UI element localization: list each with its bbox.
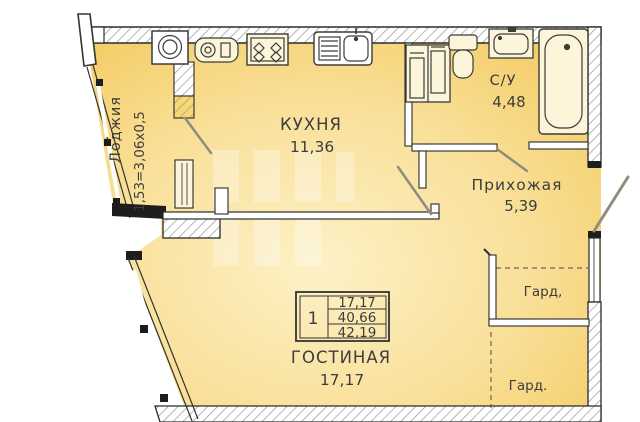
loggia-window-element	[175, 160, 193, 208]
hallway-label: Прихожая	[471, 176, 562, 194]
shaft-cabinet-icon	[406, 45, 450, 102]
sink-icon	[314, 28, 372, 65]
wall-kitchen-living-jamb	[431, 204, 439, 213]
bathroom-area: 4,48	[492, 93, 525, 111]
floor-plan-page: Лоджия 1,53=3,06х0,5 КУХНЯ 11,36 С/У 4,4…	[0, 0, 640, 422]
wall-right-frame	[589, 238, 600, 302]
loggia-partition-threshold	[174, 96, 194, 118]
wall-pier-hatched	[163, 218, 220, 238]
living-area: 17,17	[320, 371, 364, 389]
stamp-residential-area: 40,66	[338, 310, 377, 326]
wall-bottom	[155, 406, 601, 422]
living-label: ГОСТИНАЯ	[291, 348, 391, 367]
hallway-area: 5,39	[504, 197, 537, 215]
bathtub-icon	[539, 29, 588, 134]
wall-stub	[215, 188, 228, 214]
loggia-partition	[174, 62, 194, 96]
toilet-icon	[449, 35, 477, 78]
washbasin-icon	[489, 27, 533, 58]
kitchen-label: КУХНЯ	[280, 115, 342, 134]
wardrobe-top-label: Гард,	[524, 284, 563, 300]
wall-kitchen-hall	[419, 151, 426, 188]
loggia-dims: 1,53=3,06х0,5	[132, 111, 148, 212]
stamp-living-area: 17,17	[338, 296, 375, 311]
floor-plan-drawing: Лоджия 1,53=3,06х0,5 КУХНЯ 11,36 С/У 4,4…	[0, 0, 640, 422]
stamp-rooms-count: 1	[308, 309, 319, 329]
loggia-label: Лоджия	[108, 96, 124, 163]
wall-right-lower	[588, 302, 601, 422]
cooktop-icon	[195, 38, 238, 62]
wall-bath-bottom-left	[412, 144, 497, 151]
wall-bath-bottom-right	[529, 142, 588, 149]
wall-right-upper	[588, 27, 601, 167]
stamp-total-area: 42,19	[338, 325, 377, 341]
hob-icon	[247, 34, 288, 65]
washing-machine-icon	[152, 31, 188, 64]
wardrobe-bottom-label: Гард.	[509, 378, 548, 394]
kitchen-area: 11,36	[290, 138, 334, 156]
bathroom-label: С/У	[490, 73, 517, 89]
wall-kitchen-living	[163, 212, 439, 219]
entrance-jamb-top	[588, 161, 601, 168]
